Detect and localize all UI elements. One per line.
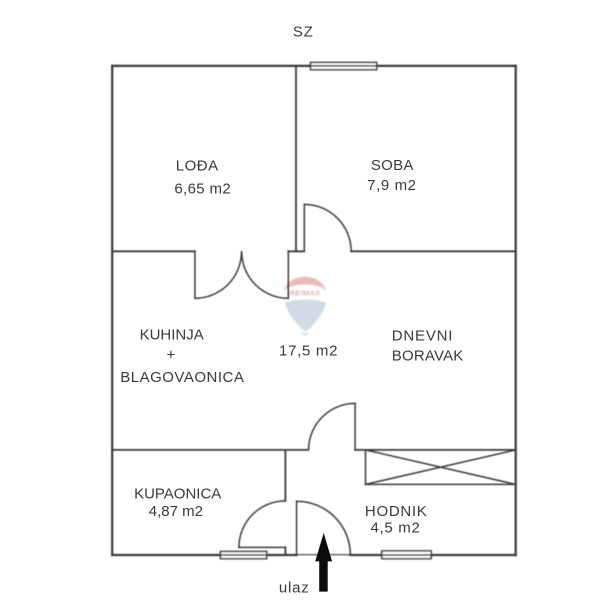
svg-text:DNEVNI: DNEVNI (392, 328, 453, 345)
svg-text:RE/MAX: RE/MAX (289, 289, 321, 298)
svg-text:KUHINJA: KUHINJA (140, 327, 204, 344)
svg-text:7,9 m2: 7,9 m2 (367, 177, 416, 194)
svg-text:BLAGOVAONICA: BLAGOVAONICA (120, 369, 244, 386)
svg-text:4,87 m2: 4,87 m2 (149, 503, 203, 520)
svg-text:6,65 m2: 6,65 m2 (174, 181, 231, 198)
svg-text:BORAVAK: BORAVAK (392, 347, 464, 364)
svg-text:ulaz: ulaz (279, 580, 310, 597)
svg-text:HODNIK: HODNIK (365, 503, 428, 520)
svg-text:LOĐA: LOĐA (176, 158, 219, 175)
svg-text:4,5 m2: 4,5 m2 (370, 519, 420, 536)
svg-text:17,5 m2: 17,5 m2 (279, 343, 338, 360)
svg-text:SOBA: SOBA (371, 157, 414, 174)
svg-text:KUPAONICA: KUPAONICA (134, 486, 221, 503)
svg-text:SZ: SZ (293, 24, 314, 41)
svg-text:+: + (167, 347, 176, 364)
